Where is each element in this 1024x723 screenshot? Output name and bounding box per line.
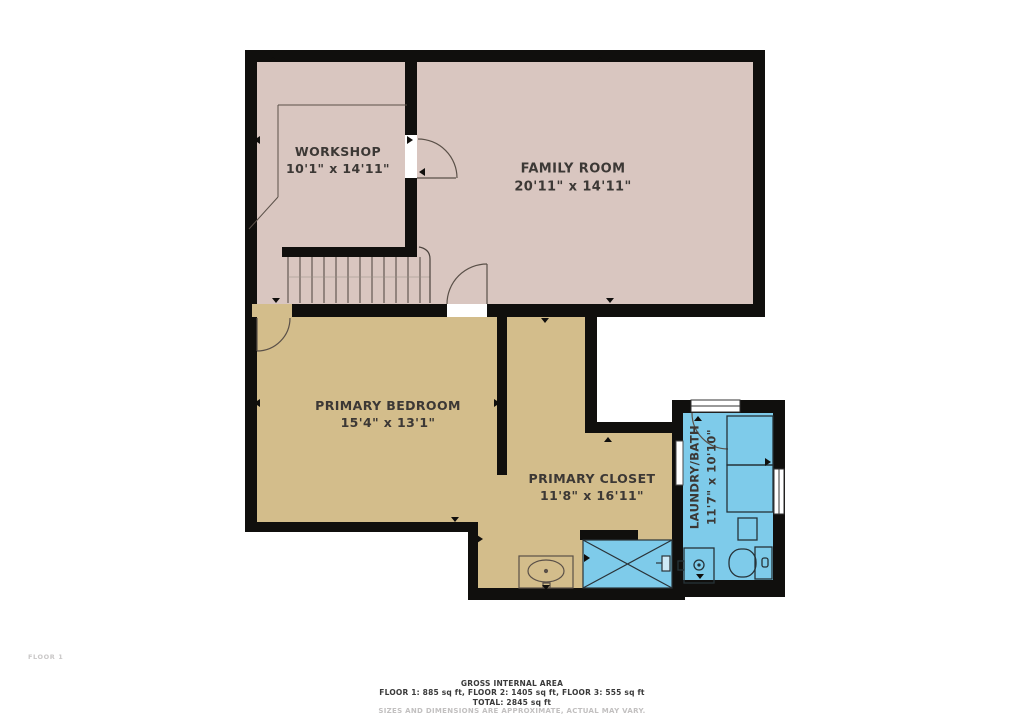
washer [727, 416, 773, 465]
room-name: LAUNDRY/BATH [687, 425, 704, 529]
room-dims: 11'8" x 16'11" [529, 487, 656, 504]
label-workshop: WORKSHOP 10'1" x 14'11" [286, 143, 390, 177]
footer-disclaimer: SIZES AND DIMENSIONS ARE APPROXIMATE, AC… [378, 707, 645, 716]
laundry-cabinet [738, 518, 757, 540]
room-dims: 10'1" x 14'11" [286, 160, 390, 177]
toilet [729, 547, 772, 579]
room-dims: 20'11" x 14'11" [514, 178, 631, 196]
window-laundry-top [691, 400, 740, 412]
shower [583, 540, 672, 588]
shower-valve [662, 556, 670, 571]
plan-linework [0, 0, 1024, 723]
footer: GROSS INTERNAL AREA FLOOR 1: 885 sq ft, … [378, 679, 645, 717]
footer-title: GROSS INTERNAL AREA [378, 679, 645, 688]
label-primary-closet: PRIMARY CLOSET 11'8" x 16'11" [529, 470, 656, 504]
vanity-sink [519, 556, 573, 588]
floor-tag: FLOOR 1 [28, 653, 63, 661]
laundry-sink [678, 548, 714, 583]
dryer [727, 465, 773, 512]
footer-areas: FLOOR 1: 885 sq ft, FLOOR 2: 1405 sq ft,… [378, 688, 645, 697]
room-name: WORKSHOP [286, 143, 390, 160]
footer-total: TOTAL: 2845 sq ft [378, 698, 645, 707]
label-laundry-bath: LAUNDRY/BATH 11'7" x 10'10" [687, 425, 720, 529]
room-dims: 11'7" x 10'10" [703, 425, 720, 529]
laundry-door-leaf [676, 441, 683, 485]
room-name: PRIMARY BEDROOM [315, 397, 461, 414]
room-name: PRIMARY CLOSET [529, 470, 656, 487]
door-stairs-bedroom [447, 264, 487, 304]
room-name: FAMILY ROOM [514, 161, 631, 179]
room-dims: 15'4" x 13'1" [315, 414, 461, 431]
label-family-room: FAMILY ROOM 20'11" x 14'11" [514, 161, 631, 196]
window-laundry-right [774, 469, 784, 514]
door-primary-bedroom [257, 318, 290, 351]
stairs [288, 247, 430, 303]
label-primary-bedroom: PRIMARY BEDROOM 15'4" x 13'1" [315, 397, 461, 431]
floor-plan-canvas: WORKSHOP 10'1" x 14'11" FAMILY ROOM 20'1… [0, 0, 1024, 723]
